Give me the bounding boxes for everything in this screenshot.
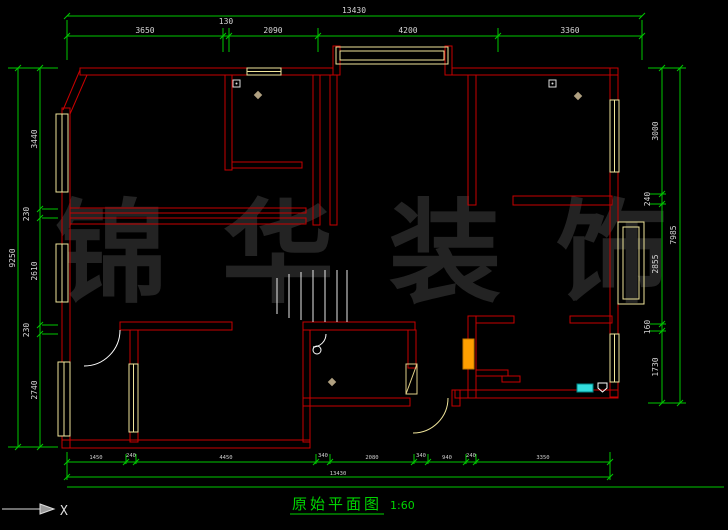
dim-bottom-seg: 940	[442, 455, 452, 461]
dim-left-seg: 3440	[30, 129, 39, 148]
title-block: 原始平面图 1:60	[290, 495, 415, 514]
dim-left-seg: 230	[22, 323, 31, 338]
dim-bottom-seg: 4450	[219, 455, 232, 461]
dim-right-seg: 3000	[651, 121, 660, 140]
dim-right-seg: 160	[643, 320, 652, 335]
drawing-title: 原始平面图	[292, 495, 382, 513]
dim-top-seg: 3360	[560, 26, 579, 35]
dim-left-seg: 2740	[30, 380, 39, 399]
dim-bottom-seg: 340	[318, 453, 328, 459]
dim-bottom-seg: 2080	[365, 455, 378, 461]
door-arc-bathroom	[313, 334, 326, 347]
dim-bottom-seg: 240	[126, 453, 136, 459]
fixture-orange	[463, 339, 474, 369]
dim-left-seg: 2610	[30, 261, 39, 280]
dim-right-seg: 240	[643, 192, 652, 207]
ucs-axis-icon: X	[2, 504, 68, 519]
dim-right-total: 7985	[669, 225, 678, 244]
marker-diamond	[328, 378, 336, 386]
dim-left-seg: 230	[22, 207, 31, 222]
axis-arrow-icon	[40, 504, 54, 514]
dim-right-seg: 1730	[651, 357, 660, 376]
dim-right-seg: 2855	[651, 254, 660, 273]
dim-bottom-seg: 1450	[89, 455, 102, 461]
dim-bottom-seg: 340	[416, 453, 426, 459]
dim-top-seg: 2090	[263, 26, 282, 35]
dim-top-total: 13430	[342, 6, 366, 15]
dim-bottom-total: 13430	[330, 471, 347, 477]
drawing-scale: 1:60	[390, 499, 415, 512]
dim-bottom-seg: 240	[466, 453, 476, 459]
axis-x-label: X	[60, 504, 68, 519]
dim-bottom-seg: 3350	[536, 455, 549, 461]
dim-top-seg: 3650	[135, 26, 154, 35]
entry-door-arc	[413, 398, 448, 433]
bay-window-top	[336, 47, 448, 64]
fixture-circle	[313, 346, 321, 354]
doors	[84, 330, 448, 433]
marker-diamond	[574, 92, 582, 100]
marker-diamond	[254, 91, 262, 99]
dim-left-total: 9250	[8, 248, 17, 267]
dim-top-seg: 130	[219, 17, 234, 26]
drain-symbol	[598, 383, 607, 392]
dim-top-seg: 4200	[398, 26, 417, 35]
door-arc-left-room	[84, 330, 120, 366]
fixture-cyan	[577, 384, 593, 392]
cad-canvas[interactable]: 锦华装饰	[0, 0, 728, 530]
